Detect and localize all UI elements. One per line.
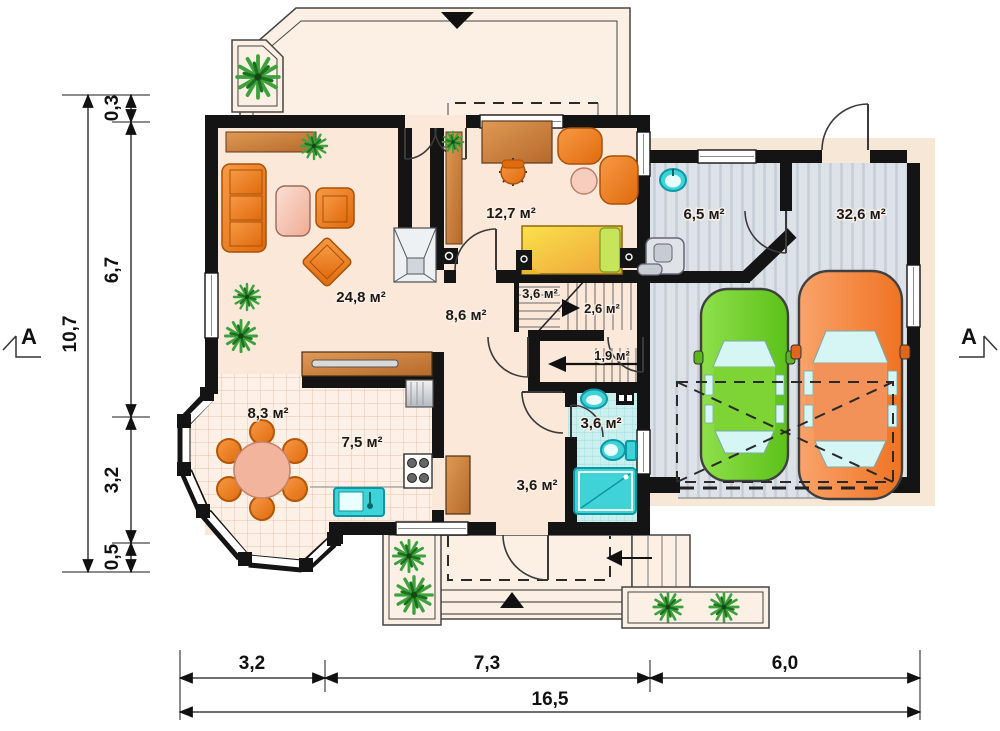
section-letter-left: A	[21, 324, 37, 349]
bar-counter	[302, 352, 432, 376]
fireplace	[394, 228, 436, 282]
floor-plan-svg: 24,8 м² 12,7 м² 8,6 м² 3,6 м² 2,6 м² 1,9…	[0, 0, 1000, 731]
room-label-stairs-upper: 3,6 м²	[522, 286, 558, 301]
room-label-hall: 8,6 м²	[445, 307, 486, 324]
mirror	[694, 351, 703, 364]
dim-bottom-total: 16,5	[532, 689, 569, 710]
cabinet-knob	[627, 395, 632, 401]
dim-left-seg-2: 3,2	[102, 467, 123, 493]
room-label-study: 12,7 м²	[486, 205, 535, 222]
dim-left-seg-1: 6,7	[102, 257, 123, 283]
gas-stove	[404, 454, 432, 488]
terrace	[232, 8, 630, 130]
section-letter-right: A	[961, 324, 977, 349]
room-label-kitchen: 7,5 м²	[341, 434, 382, 451]
porch-planter-left	[383, 529, 441, 625]
shower	[574, 468, 636, 514]
toilet	[601, 440, 636, 460]
washbasin-bowl	[586, 395, 602, 405]
room-label-garage: 32,6 м²	[836, 206, 885, 223]
room-label-dining: 8,3 м²	[247, 405, 288, 422]
open-door-leaf	[446, 456, 470, 514]
window	[907, 265, 920, 327]
nightstand	[516, 250, 532, 270]
nightstand	[620, 248, 638, 268]
window	[205, 273, 218, 338]
window	[637, 132, 650, 176]
chair	[250, 496, 274, 520]
room-label-stairs-flight: 2,6 м²	[584, 301, 620, 316]
sofa	[222, 164, 266, 252]
window	[637, 430, 650, 474]
cabinet-knob	[619, 395, 624, 401]
side-landing	[632, 535, 690, 589]
armchair	[316, 188, 354, 228]
chair	[250, 420, 274, 444]
dim-left-total: 10,7	[60, 316, 81, 353]
dim-bottom-seg-2: 6,0	[772, 653, 798, 674]
side-table	[571, 168, 597, 194]
mirror	[900, 345, 910, 359]
window	[396, 522, 468, 535]
mirror	[791, 345, 801, 359]
porch-planter-right	[622, 587, 769, 628]
coffee-table	[276, 186, 310, 236]
kitchen-sink	[334, 488, 384, 516]
sideboard	[226, 132, 316, 152]
desk	[482, 121, 552, 163]
porch-floor	[438, 535, 632, 619]
armchair	[600, 156, 638, 204]
room-label-stairs-lower: 1,9 м²	[594, 348, 630, 363]
window	[698, 150, 756, 163]
dining-table	[234, 442, 290, 498]
dim-left-seg-0: 0,3	[102, 95, 123, 121]
floor-plan-page: 24,8 м² 12,7 м² 8,6 м² 3,6 м² 2,6 м² 1,9…	[0, 0, 1000, 731]
dim-bottom-seg-1: 7,3	[474, 653, 500, 674]
fridge	[406, 380, 433, 407]
room-label-bathroom: 3,6 м²	[580, 415, 621, 432]
room-label-hallway: 3,6 м²	[516, 477, 557, 494]
armchair	[558, 128, 602, 164]
bed	[522, 226, 622, 274]
dim-bottom-seg-0: 3,2	[239, 653, 265, 674]
utility-sink-bowl	[665, 175, 681, 188]
dim-left-seg-3: 0,5	[102, 543, 123, 570]
car-green	[694, 289, 795, 481]
terrace-outline	[240, 8, 630, 130]
office-chair	[499, 158, 527, 186]
room-label-utility: 6,5 м²	[683, 206, 724, 223]
room-label-living: 24,8 м²	[336, 289, 385, 306]
